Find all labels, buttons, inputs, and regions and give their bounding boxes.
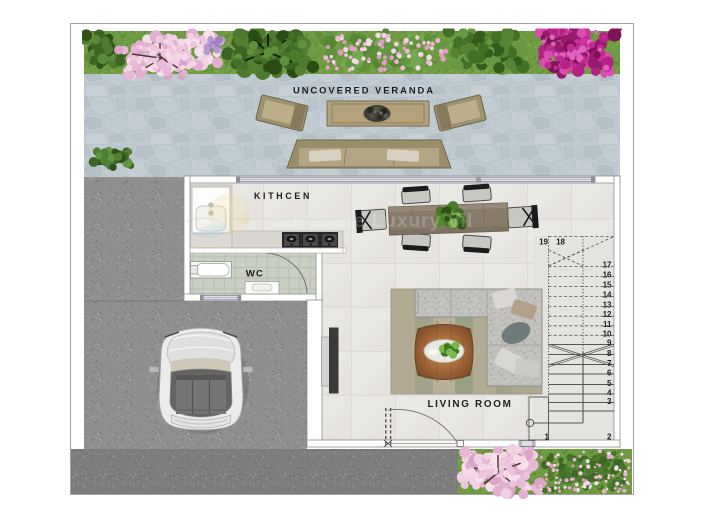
svg-text:LIVING ROOM: LIVING ROOM xyxy=(427,399,512,410)
svg-text:WC: WC xyxy=(246,269,264,280)
svg-text:6: 6 xyxy=(607,369,612,378)
svg-text:2: 2 xyxy=(607,433,612,442)
svg-text:11: 11 xyxy=(603,320,612,329)
svg-text:17: 17 xyxy=(603,261,612,270)
svg-text:9: 9 xyxy=(607,339,612,348)
svg-text:1: 1 xyxy=(545,433,550,442)
svg-text:7: 7 xyxy=(607,359,612,368)
svg-text:19: 19 xyxy=(539,238,548,247)
svg-text:16: 16 xyxy=(603,271,612,280)
svg-text:UNCOVERED VERANDA: UNCOVERED VERANDA xyxy=(293,85,435,96)
svg-text:14: 14 xyxy=(603,291,612,300)
svg-text:18: 18 xyxy=(556,238,565,247)
svg-text:12: 12 xyxy=(603,310,612,319)
svg-text:15: 15 xyxy=(603,281,612,290)
svg-text:5: 5 xyxy=(607,379,612,388)
svg-text:13: 13 xyxy=(603,301,612,310)
svg-text:Sunshine Luxury Vil: Sunshine Luxury Vil xyxy=(272,211,473,232)
svg-text:10: 10 xyxy=(603,330,612,339)
svg-text:8: 8 xyxy=(607,349,612,358)
svg-text:KITHCEN: KITHCEN xyxy=(254,191,312,201)
svg-text:3: 3 xyxy=(607,397,612,406)
